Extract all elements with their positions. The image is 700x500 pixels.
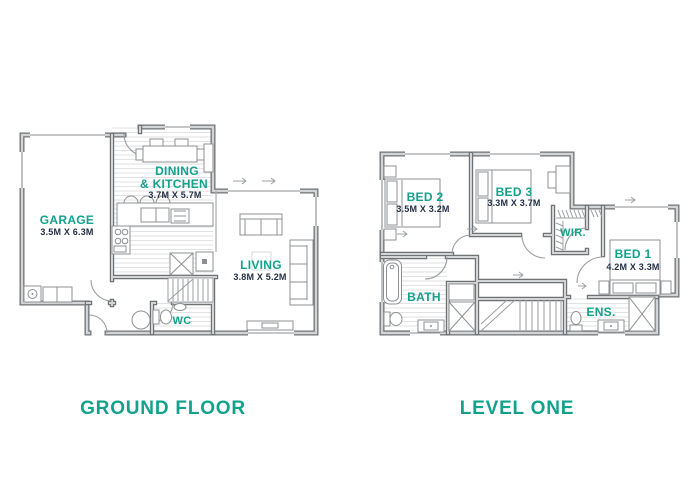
door-arc — [452, 235, 471, 254]
ground-floor-plan: GARAGE 3.5M X 6.3M DINING & KITCHEN 3.7M… — [22, 127, 316, 333]
room-label-bed2: BED 2 — [407, 190, 444, 204]
side-table-icon — [599, 281, 609, 294]
toilet-icon — [384, 312, 402, 326]
room-label-bed1: BED 1 — [615, 247, 652, 261]
level-one-title: LEVEL ONE — [460, 398, 575, 419]
room-dims-bed3: 3.3M X 3.7M — [487, 198, 540, 208]
room-label-kitchen: & KITCHEN — [140, 177, 208, 191]
ground-floor-title: GROUND FLOOR — [80, 398, 246, 419]
room-dims-garage: 3.5M X 6.3M — [40, 227, 93, 237]
pillow-icon — [387, 181, 397, 202]
sink-icon — [156, 208, 169, 222]
linen-cupboard-icon — [449, 284, 474, 300]
basin-icon — [174, 304, 186, 311]
room-label-ens: ENS. — [586, 305, 615, 319]
room-dims-living: 3.8M X 5.2M — [233, 272, 286, 282]
dryer-icon — [57, 287, 72, 302]
toilet-icon — [153, 310, 172, 324]
room-label-wir: WIR. — [560, 227, 586, 239]
entry-table-icon — [132, 311, 150, 329]
pillow-icon — [636, 283, 656, 293]
room-label-bath: BATH — [407, 290, 441, 304]
sofa-icon — [240, 214, 282, 235]
stove-icon — [112, 226, 130, 254]
tv-unit-icon — [247, 321, 293, 330]
sink-icon — [141, 208, 156, 222]
side-table-icon — [384, 166, 396, 177]
door-arc — [577, 257, 603, 283]
shower-icon — [449, 302, 475, 331]
room-label-dining: DINING — [155, 164, 199, 178]
vanity-icon — [598, 320, 624, 332]
room-dims-dining-kitchen: 3.7M X 5.7M — [148, 190, 201, 200]
window-opening-marks — [233, 178, 275, 184]
cabinet-icon — [204, 144, 213, 172]
room-label-garage: GARAGE — [40, 213, 94, 227]
bathtub-icon — [384, 260, 402, 304]
pillow-icon — [613, 283, 633, 293]
room-label-living: LIVING — [240, 258, 282, 272]
side-table-icon — [661, 281, 671, 294]
room-label-bed3: BED 3 — [496, 185, 533, 199]
toilet-icon — [570, 312, 582, 332]
level-one-plan: BED 2 3.5M X 3.2M BED 3 3.3M X 3.7M WIR.… — [382, 154, 677, 333]
floorplan-canvas: GARAGE 3.5M X 6.3M DINING & KITCHEN 3.7M… — [0, 0, 700, 500]
room-label-wc: WC — [173, 315, 192, 327]
hot-water-unit-icon — [196, 252, 213, 271]
pillow-icon — [478, 172, 488, 196]
door-arc — [91, 280, 112, 301]
door-arc — [522, 235, 545, 258]
desk-icon — [548, 166, 570, 193]
couch-icon — [290, 240, 313, 305]
room-dims-bed2: 3.5M X 3.2M — [396, 204, 449, 214]
vanity-icon — [418, 320, 444, 332]
room-dims-bed1: 4.2M X 3.3M — [606, 262, 659, 272]
pantry-icon — [170, 253, 193, 275]
door-arc — [89, 315, 107, 333]
washer-icon — [43, 287, 57, 302]
stairs-icon — [481, 300, 561, 332]
laundry-tub-icon — [24, 286, 72, 302]
stairs-icon — [168, 278, 213, 302]
shower-icon — [629, 297, 655, 331]
side-table-icon — [384, 229, 396, 240]
